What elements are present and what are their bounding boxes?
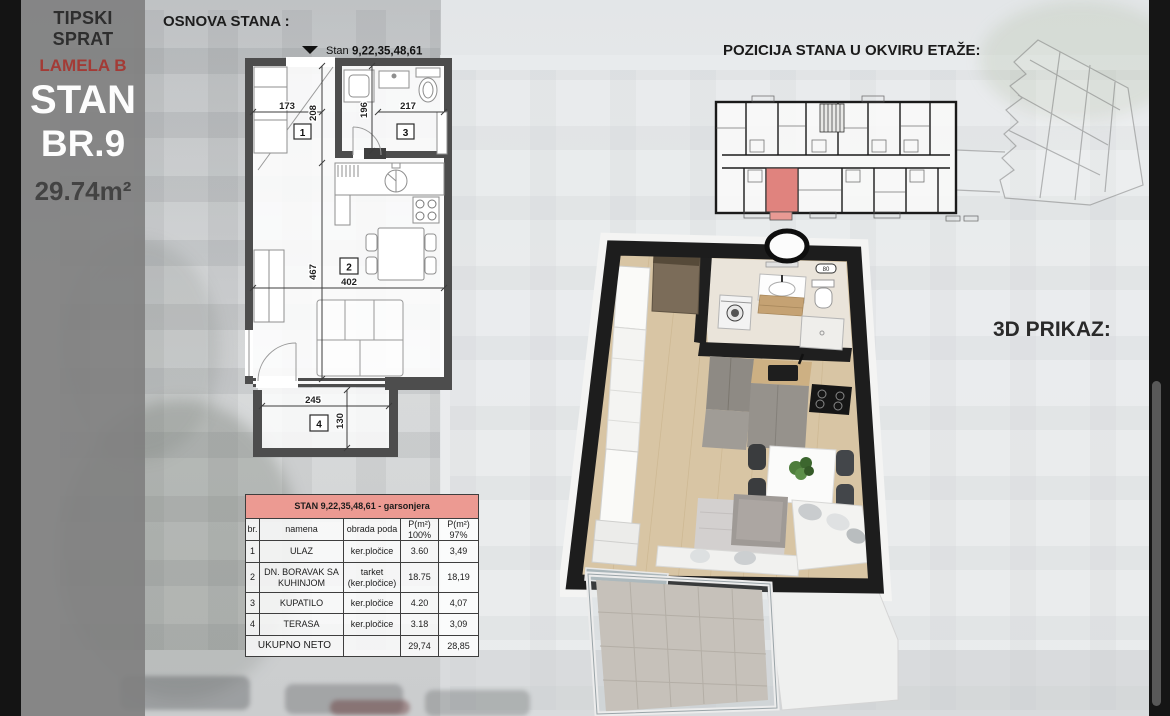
dim-entry-depth: 208 [308,105,319,121]
building-floor-outline [716,96,978,221]
cell-br: 3 [246,593,260,614]
dresser-3d [592,520,640,566]
background-car [425,690,530,716]
apartment-info-panel: TIPSKI SPRAT LAMELA B STAN BR.9 29.74m² [21,0,145,716]
terrace-door-opening [256,376,298,388]
kitchen-lower-cabinet [702,409,750,450]
room-3: 3 [403,128,409,139]
apartment-area: 29.74m² [21,176,145,207]
lamela-label: LAMELA B [21,56,145,76]
dim-living-depth: 467 [308,264,319,280]
parapet-wall [766,580,898,710]
round-table-3d [767,231,807,261]
shower-3d [800,316,844,350]
dim-terrace-depth: 130 [335,413,346,429]
kitchen-sink-3d [768,365,798,381]
col-namena: namena [260,519,344,541]
chair-3d [836,450,854,476]
background-car-red [330,700,410,715]
floor-plan-2d: Stan 9,22,35,48,61 [240,36,462,460]
table-row: 4 TERASA ker.pločice 3.18 3,09 [246,614,479,636]
toilet-3d [812,280,834,287]
apartment-number: BR.9 [21,122,145,166]
dim-entry-width: 173 [279,101,295,112]
cell-namena: ULAZ [260,541,344,563]
total-empty [344,636,401,657]
floor-type-label: TIPSKI SPRAT [21,8,145,50]
cell-obrada: tarket (ker.pločice) [344,563,401,593]
kitchen-tall-cabinet [706,356,754,412]
table-row: 1 ULAZ ker.pločice 3.60 3,49 [246,541,479,563]
col-p97: P(m²) 97% [439,519,479,541]
cell-p97: 3,49 [439,541,479,563]
cell-p100: 18.75 [401,563,439,593]
left-black-strip [0,0,21,716]
chair-3d [748,444,766,470]
entry-door-opening [286,57,335,67]
cell-br: 2 [246,563,260,593]
down-triangle-icon [302,46,318,54]
terrace-3d [588,574,777,714]
dim-bath-width: 217 [400,101,416,112]
floor-position-diagram [700,25,1160,225]
total-label: UKUPNO NETO [246,636,344,657]
total-p100: 29,74 [401,636,439,657]
dim-living-width: 402 [341,277,357,288]
cooktop-3d [809,384,852,415]
terrace-glass-railing [588,574,777,714]
bath-door-threshold [364,148,386,159]
room-1: 1 [300,128,306,139]
col-p100: P(m²) 100% [401,519,439,541]
cell-p100: 3.18 [401,614,439,636]
total-p97: 28,85 [439,636,479,657]
cell-p97: 4,07 [439,593,479,614]
highlighted-unit [766,168,798,212]
room-4: 4 [316,420,322,431]
table-total-row: UKUPNO NETO 29,74 28,85 [246,636,479,657]
cell-p100: 3.60 [401,541,439,563]
table-row: 3 KUPATILO ker.pločice 4.20 4,07 [246,593,479,614]
cell-obrada: ker.pločice [344,541,401,563]
cell-namena: KUPATILO [260,593,344,614]
toilet-cistern [416,68,440,77]
dining-table [378,228,424,280]
section-title-3d: 3D PRIKAZ: [993,318,1111,342]
cell-namena: DN. BORAVAK SA KUHINJOM [260,563,344,593]
dim-bath-depth: 196 [359,102,370,118]
dim-terrace-width: 245 [305,395,322,406]
apartment-word: STAN [21,78,145,122]
cell-namena: TERASA [260,614,344,636]
apartment-3d-render: 80 [560,218,980,716]
apartment-spec-table: STAN 9,22,35,48,61 - garsonjera br. name… [245,494,479,657]
building-wing-faint [956,40,1143,205]
plan-title-prefix: Stan [326,45,349,57]
section-title-floorplan: OSNOVA STANA : [163,13,290,30]
table-row: 2 DN. BORAVAK SA KUHINJOM tarket (ker.pl… [246,563,479,593]
plan-title-numbers: 9,22,35,48,61 [352,46,423,58]
sofa-plan [317,300,403,376]
cell-p97: 18,19 [439,563,479,593]
table-header-row: br. namena obrada poda P(m²) 100% P(m²) … [246,519,479,541]
plan-title: Stan 9,22,35,48,61 [302,45,423,58]
table-title: STAN 9,22,35,48,61 - garsonjera [246,495,479,519]
col-obrada: obrada poda [344,519,401,541]
cell-obrada: ker.pločice [344,614,401,636]
page: TIPSKI SPRAT LAMELA B STAN BR.9 29.74m² … [0,0,1170,716]
shower-strip [437,112,447,154]
cell-p100: 4.20 [401,593,439,614]
scrollbar-thumb[interactable] [1152,381,1161,706]
col-br: br. [246,519,260,541]
cell-br: 4 [246,614,260,636]
cell-br: 1 [246,541,260,563]
cell-p97: 3,09 [439,614,479,636]
room-2: 2 [346,263,352,274]
cell-obrada: ker.pločice [344,593,401,614]
boiler-label: 80 [823,267,830,273]
